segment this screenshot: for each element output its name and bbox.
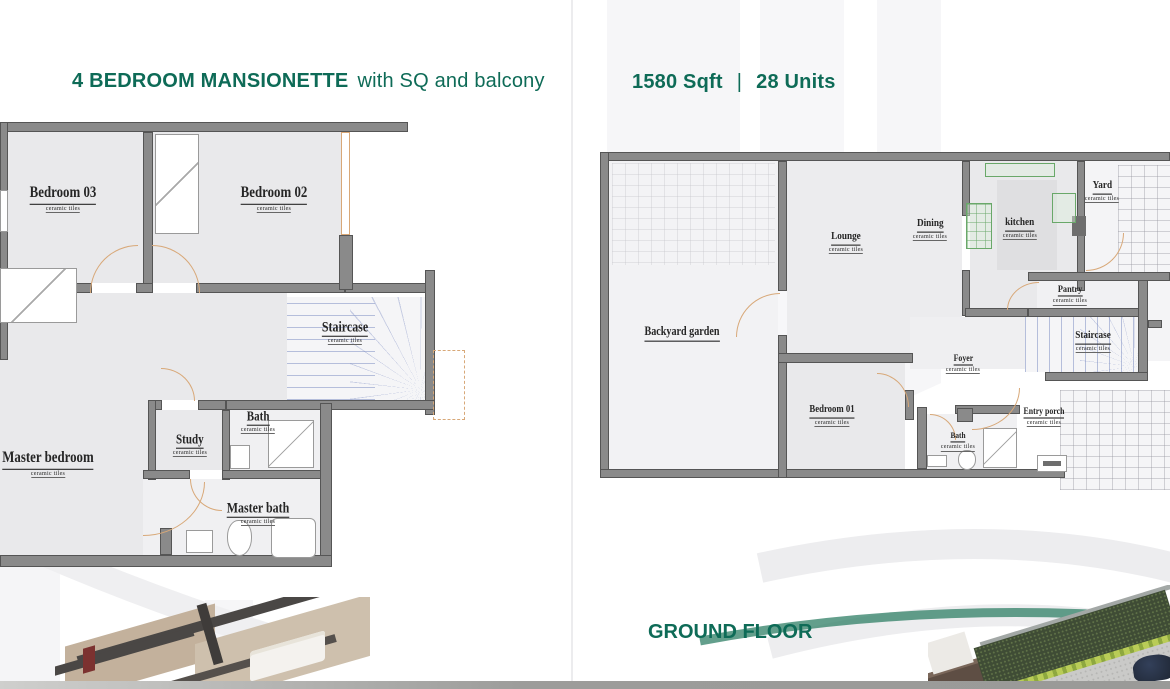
fridge-unit (1052, 193, 1076, 223)
floor-name-label: GROUND FLOOR (648, 621, 812, 644)
closet (155, 134, 199, 234)
balcony-hatch (433, 350, 465, 420)
garden-pattern (612, 163, 775, 265)
left-plan-title-bold: 4 BEDROOM MANSIONETTE (72, 70, 348, 92)
window (341, 132, 350, 235)
yard-paving (1118, 165, 1170, 280)
room-label-pantry: Pantryceramic tiles (1053, 285, 1087, 306)
window (0, 190, 8, 232)
watermark-band (0, 560, 60, 681)
wall (778, 353, 913, 363)
room-label-staircase: Staircaseceramic tiles (320, 320, 370, 345)
shower-fixture (983, 428, 1017, 468)
room-floor (0, 293, 148, 555)
room-label-backyard-garden: Backyard garden (641, 327, 723, 341)
room-label-bedroom-02: Bedroom 02ceramic tiles (238, 187, 310, 213)
wall (1045, 372, 1148, 381)
room-label-entry-porch: Entry porchceramic tiles (1022, 407, 1066, 427)
room-label-yard: Yardceramic tiles (1085, 181, 1119, 203)
wall (600, 152, 609, 478)
porch-paving (1060, 390, 1170, 490)
room-label-bath: Bathceramic tiles (241, 410, 275, 434)
room-label-bedroom-03: Bedroom 03ceramic tiles (27, 187, 99, 213)
wall (148, 400, 156, 480)
sink-fixture (230, 445, 250, 469)
room-label-foyer: Foyerceramic tiles (946, 354, 980, 374)
left-plan-title: 4 BEDROOM MANSIONETTEwith SQ and balcony (72, 70, 545, 93)
left-plan-title-tail: with SQ and balcony (357, 70, 544, 92)
sink-fixture (186, 530, 213, 553)
room-label-study: Studyceramic tiles (173, 433, 207, 457)
wall (778, 161, 787, 291)
room-label-master-bedroom: Master bedroomceramic tiles (0, 452, 98, 478)
wall (143, 470, 190, 479)
wardrobe (0, 268, 77, 323)
wall (0, 122, 408, 132)
wall (136, 283, 153, 293)
stair-fan (350, 297, 425, 400)
wall (1028, 308, 1143, 317)
wall (339, 235, 353, 290)
3d-render-upper-floor (55, 597, 400, 681)
wall (1148, 320, 1162, 328)
right-plan-title: 1580 Sqft|28 Units (632, 71, 836, 94)
room-label-bath-ground: Bathceramic tiles (941, 432, 975, 452)
kitchen-sink-unit (966, 203, 992, 249)
area-value: 1580 Sqft (632, 71, 723, 93)
room-label-master-bath: Master bathceramic tiles (224, 501, 292, 526)
wall (1028, 272, 1170, 281)
toilet-fixture (958, 450, 976, 470)
wall (198, 400, 226, 410)
room-label-lounge: Loungeceramic tiles (829, 232, 863, 254)
units-value: 28 Units (756, 71, 835, 93)
wall (196, 283, 345, 293)
wall (222, 470, 330, 479)
wall (1138, 280, 1148, 377)
wall (320, 403, 332, 567)
wall (600, 152, 1170, 161)
sink-fixture (927, 455, 947, 467)
title-divider: | (737, 71, 742, 93)
wall (957, 408, 973, 422)
3d-render-ground-floor (928, 585, 1170, 681)
brochure-page: 4 BEDROOM MANSIONETTEwith SQ and balcony… (0, 0, 1170, 689)
room-label-bedroom-01: Bedroom 01ceramic tiles (807, 406, 856, 427)
wall (917, 407, 927, 469)
doormat-step-bar (1043, 461, 1061, 466)
room-label-kitchen: kitchenceramic tiles (1003, 218, 1037, 240)
kitchen-counter-unit (985, 163, 1055, 177)
room-label-dining: Diningceramic tiles (913, 219, 947, 241)
wall (0, 122, 8, 360)
wall (600, 469, 1065, 478)
room-label-staircase-ground: Staircaseceramic tiles (1074, 331, 1113, 353)
wall (345, 283, 435, 293)
page-divider (571, 0, 573, 689)
bottom-bar (0, 681, 1170, 689)
